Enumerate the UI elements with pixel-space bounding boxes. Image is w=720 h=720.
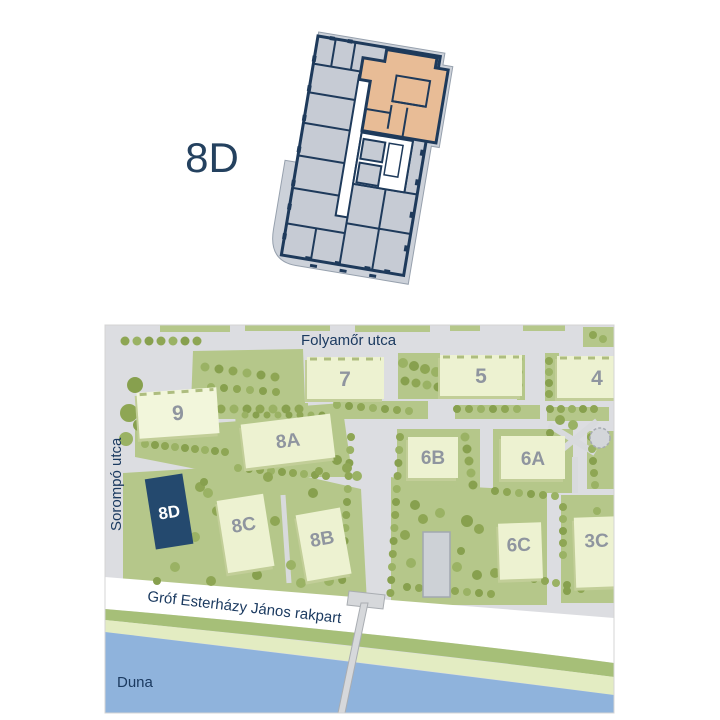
tree-icon <box>589 457 597 465</box>
tree-icon <box>242 412 249 419</box>
tree-icon <box>211 447 219 455</box>
tree-icon <box>264 412 271 419</box>
tree-icon <box>546 429 554 437</box>
roundabout <box>590 428 610 448</box>
floorplan <box>268 30 455 286</box>
tree-icon <box>463 445 472 454</box>
building-label: 6C <box>506 535 531 557</box>
building-label: 8B <box>308 527 336 552</box>
scene: 8D <box>0 0 720 720</box>
tree-icon <box>181 444 189 452</box>
tree-icon <box>257 371 266 380</box>
tree-icon <box>453 405 461 413</box>
tree-icon <box>568 405 576 413</box>
tree-icon <box>233 385 241 393</box>
tree-icon <box>545 357 553 365</box>
tree-icon <box>121 337 130 346</box>
tree-icon <box>275 412 282 419</box>
tree-icon <box>263 472 273 482</box>
tree-icon <box>552 579 560 587</box>
tree-icon <box>390 524 398 532</box>
tree-icon <box>388 563 396 571</box>
tree-icon <box>559 527 567 535</box>
tree-icon <box>221 448 229 456</box>
tree-icon <box>487 590 495 598</box>
tree-icon <box>127 377 143 393</box>
tree-icon <box>333 401 341 409</box>
tree-icon <box>343 498 351 506</box>
tree-icon <box>568 420 578 430</box>
tree-icon <box>133 337 142 346</box>
tree-icon <box>394 472 402 480</box>
tree-icon <box>369 404 377 412</box>
tree-icon <box>386 589 394 597</box>
tree-icon <box>342 463 352 473</box>
tree-icon <box>503 488 511 496</box>
tree-icon <box>201 363 210 372</box>
tree-icon <box>270 516 280 526</box>
tree-icon <box>344 485 352 493</box>
tree-icon <box>477 405 485 413</box>
tree-icon <box>435 508 445 518</box>
building-label: 9 <box>171 402 184 426</box>
tree-icon <box>513 405 521 413</box>
tree-icon <box>475 589 483 597</box>
tree-icon <box>474 524 484 534</box>
tree-icon <box>215 365 224 374</box>
building-label: 5 <box>475 365 487 388</box>
building-shape[interactable] <box>574 516 618 587</box>
tree-icon <box>423 381 432 390</box>
tree-icon <box>589 331 597 339</box>
tree-icon <box>278 468 286 476</box>
map-building-6B[interactable]: 6B <box>406 437 458 481</box>
map-building-3C[interactable]: 3C <box>572 516 619 590</box>
tree-icon <box>489 405 497 413</box>
tree-icon <box>346 446 354 454</box>
map-building-6C[interactable]: 6C <box>496 522 543 583</box>
tree-icon <box>345 472 353 480</box>
tree-icon <box>286 412 293 419</box>
tree-icon <box>392 498 400 506</box>
tree-icon <box>465 457 474 466</box>
tree-icon <box>169 337 178 346</box>
tree-icon <box>315 467 323 475</box>
tree-icon <box>322 472 330 480</box>
map-building-7[interactable]: 7 <box>305 357 384 402</box>
tree-icon <box>200 478 208 486</box>
tree-icon <box>563 587 571 595</box>
tree-icon <box>157 337 166 346</box>
tree-icon <box>405 407 413 415</box>
tree-icon <box>467 469 476 478</box>
river-label-duna: Duna <box>117 674 154 691</box>
tree-icon <box>590 405 598 413</box>
tree-icon <box>389 550 397 558</box>
tree-icon <box>590 469 598 477</box>
tree-icon <box>191 445 199 453</box>
building-label: 8C <box>230 513 258 538</box>
map-building-5[interactable]: 5 <box>438 355 522 399</box>
tree-icon <box>220 384 228 392</box>
tree-icon <box>170 562 180 572</box>
floorplan-stair-core <box>360 139 385 162</box>
tree-icon <box>161 442 169 450</box>
tree-icon <box>469 481 478 490</box>
tree-icon <box>246 386 254 394</box>
tree-icon <box>300 470 308 478</box>
tree-icon <box>394 459 402 467</box>
tree-icon <box>201 446 209 454</box>
tree-icon <box>591 481 599 489</box>
tree-icon <box>396 433 404 441</box>
tree-icon <box>559 503 567 511</box>
tree-icon <box>234 464 242 472</box>
tree-icon <box>599 335 607 343</box>
tree-icon <box>391 511 399 519</box>
tree-icon <box>472 570 482 580</box>
tree-icon <box>418 514 428 524</box>
tree-icon <box>461 515 473 527</box>
tree-icon <box>206 576 216 586</box>
tree-icon <box>193 337 202 346</box>
tree-icon <box>229 367 238 376</box>
building-label: 7 <box>339 368 351 391</box>
tree-icon <box>465 405 473 413</box>
tree-icon <box>151 441 159 449</box>
map-building-unlabeled <box>423 532 450 597</box>
tree-icon <box>145 337 154 346</box>
tree-icon <box>501 405 509 413</box>
tree-icon <box>271 373 280 382</box>
tree-icon <box>491 487 499 495</box>
tree-icon <box>347 433 355 441</box>
tree-icon <box>515 489 523 497</box>
tree-icon <box>579 405 587 413</box>
tree-icon <box>409 361 419 371</box>
tree-icon <box>461 433 470 442</box>
building-label: 6A <box>521 449 546 470</box>
tree-icon <box>452 562 462 572</box>
tree-icon <box>120 404 138 422</box>
tree-icon <box>296 578 306 588</box>
map-building-9[interactable]: 9 <box>134 387 219 442</box>
building-label: 3C <box>584 531 609 553</box>
tree-icon <box>412 379 421 388</box>
tree-icon <box>420 364 430 374</box>
tree-icon <box>557 405 565 413</box>
building-label-highlighted: 8D <box>157 501 181 523</box>
tree-icon <box>463 588 471 596</box>
street-label-sorompo: Sorompó utca <box>108 437 125 531</box>
tree-icon <box>272 388 280 396</box>
tree-icon <box>181 337 190 346</box>
map-building-6A[interactable]: 6A <box>499 436 565 482</box>
tree-icon <box>345 402 353 410</box>
building-label: 4 <box>591 367 603 390</box>
tree-icon <box>387 576 395 584</box>
tree-icon <box>559 539 567 547</box>
tree-icon <box>400 530 410 540</box>
floorplan-unit-title: 8D <box>185 134 239 181</box>
tree-icon <box>289 469 297 477</box>
tree-icon <box>286 560 296 570</box>
tree-icon <box>308 488 318 498</box>
tree-icon <box>546 405 554 413</box>
tree-icon <box>406 558 416 568</box>
tree-icon <box>203 488 213 498</box>
building-label: 6B <box>421 448 445 469</box>
tree-icon <box>171 443 179 451</box>
tree-icon <box>551 492 559 500</box>
tree-icon <box>410 500 420 510</box>
tree-icon <box>415 584 423 592</box>
tree-icon <box>559 515 567 523</box>
tree-icon <box>153 577 161 585</box>
tree-icon <box>457 547 465 555</box>
tree-icon <box>559 551 567 559</box>
tree-icon <box>357 403 365 411</box>
tree-icon <box>403 583 411 591</box>
tree-icon <box>401 377 410 386</box>
site-map: 9 7 5 4 <box>105 325 618 713</box>
tree-icon <box>390 537 398 545</box>
floorplan-elevator-core <box>356 163 381 186</box>
building-label: 8A <box>275 430 302 454</box>
tree-icon <box>545 368 553 376</box>
tree-icon <box>545 390 553 398</box>
building-shape[interactable] <box>557 356 617 398</box>
tree-icon <box>243 369 252 378</box>
tree-icon <box>545 379 553 387</box>
page: 8D <box>0 0 720 720</box>
tree-icon <box>230 405 239 414</box>
tree-icon <box>381 405 389 413</box>
tree-icon <box>259 387 267 395</box>
tree-icon <box>342 511 350 519</box>
tree-icon <box>398 358 408 368</box>
tree-icon <box>555 415 565 425</box>
tree-icon <box>253 412 260 419</box>
tree-icon <box>593 507 601 515</box>
tree-icon <box>539 491 547 499</box>
building-shape-gray <box>423 532 450 597</box>
tree-icon <box>395 446 403 454</box>
tree-icon <box>393 406 401 414</box>
tree-icon <box>352 471 362 481</box>
tree-icon <box>527 490 535 498</box>
street-label-folyamor: Folyamőr utca <box>301 332 397 349</box>
tree-icon <box>451 587 459 595</box>
map-building-4[interactable]: 4 <box>555 356 617 401</box>
tree-icon <box>393 485 401 493</box>
